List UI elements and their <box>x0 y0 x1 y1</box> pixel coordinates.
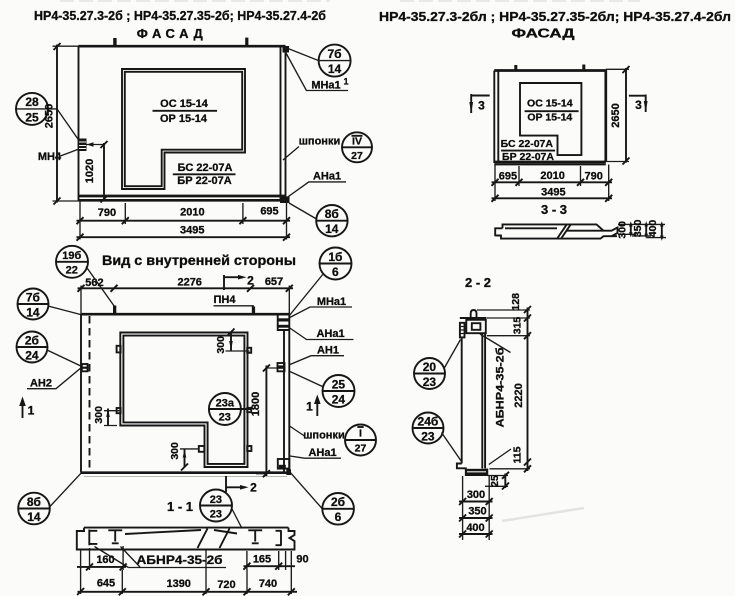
svg-text:90: 90 <box>296 554 308 566</box>
svg-text:АНа1: АНа1 <box>308 447 336 459</box>
svg-text:БС 22-07А: БС 22-07А <box>178 162 233 174</box>
svg-text:3495: 3495 <box>180 225 204 237</box>
svg-text:20: 20 <box>423 360 437 374</box>
svg-text:ОС 15-14: ОС 15-14 <box>160 98 209 110</box>
svg-text:7б: 7б <box>327 47 341 61</box>
svg-text:БС 22-07А: БС 22-07А <box>501 138 554 150</box>
svg-text:8б: 8б <box>27 495 41 509</box>
svg-text:ПН4: ПН4 <box>214 294 237 306</box>
svg-text:28: 28 <box>25 95 39 109</box>
svg-text:300: 300 <box>215 336 227 354</box>
svg-text:1800: 1800 <box>250 392 262 416</box>
svg-text:657: 657 <box>265 276 283 288</box>
svg-text:АНа1: АНа1 <box>316 328 344 340</box>
svg-text:645: 645 <box>97 577 115 589</box>
svg-text:1: 1 <box>28 404 35 418</box>
svg-text:ОС 15-14: ОС 15-14 <box>527 97 573 109</box>
svg-text:22: 22 <box>66 265 78 277</box>
svg-text:1390: 1390 <box>166 578 190 590</box>
svg-text:2220: 2220 <box>513 383 525 407</box>
svg-text:6: 6 <box>335 510 342 524</box>
svg-text:23: 23 <box>421 429 435 443</box>
svg-text:1: 1 <box>306 400 313 414</box>
svg-text:2: 2 <box>247 274 254 288</box>
svg-text:1 - 1: 1 - 1 <box>167 499 193 514</box>
svg-text:1б: 1б <box>328 250 342 264</box>
svg-text:2б: 2б <box>25 333 39 347</box>
svg-text:шпонки: шпонки <box>303 429 344 441</box>
svg-text:300: 300 <box>617 221 629 239</box>
svg-text:25: 25 <box>489 475 501 487</box>
svg-text:23: 23 <box>423 375 437 389</box>
svg-text:24б: 24б <box>418 414 439 428</box>
svg-text:27: 27 <box>355 443 367 455</box>
svg-text:2650: 2650 <box>610 103 622 127</box>
svg-text:2 - 2: 2 - 2 <box>465 275 491 290</box>
svg-text:720: 720 <box>217 579 235 591</box>
svg-text:7б: 7б <box>26 290 40 304</box>
svg-text:ОР 15-14: ОР 15-14 <box>527 111 572 123</box>
svg-text:шпонки: шпонки <box>299 136 340 148</box>
svg-text:350: 350 <box>468 506 486 518</box>
svg-text:НР4-35.27.3-2бл ; НР4-35.27.3: НР4-35.27.3-2бл ; НР4-35.27.35-2бл; НР4-… <box>379 9 731 24</box>
svg-text:6: 6 <box>332 265 339 279</box>
svg-text:115: 115 <box>512 446 524 463</box>
svg-text:14: 14 <box>328 62 342 76</box>
svg-text:ФАСАД: ФАСАД <box>137 26 208 41</box>
svg-text:ОР 15-14: ОР 15-14 <box>160 113 208 125</box>
svg-text:АН2: АН2 <box>30 378 52 390</box>
svg-text:25: 25 <box>25 111 39 125</box>
svg-text:Вид с внутренней стороны: Вид с внутренней стороны <box>102 252 296 268</box>
svg-text:2б: 2б <box>331 495 345 509</box>
svg-text:3495: 3495 <box>541 186 565 198</box>
svg-text:АБНР4-35-2б: АБНР4-35-2б <box>495 347 507 427</box>
svg-text:АНа1: АНа1 <box>313 170 341 182</box>
svg-text:14: 14 <box>26 305 40 319</box>
svg-text:МНа1: МНа1 <box>317 296 346 308</box>
svg-text:ФАСАД: ФАСАД <box>512 26 576 41</box>
svg-text:3: 3 <box>635 98 642 112</box>
svg-text:1020: 1020 <box>84 159 96 183</box>
svg-text:МН4: МН4 <box>38 151 62 163</box>
svg-text:400: 400 <box>466 522 484 534</box>
svg-text:14: 14 <box>325 222 339 236</box>
svg-text:АБНР4-35-2б: АБНР4-35-2б <box>137 553 223 567</box>
svg-text:25: 25 <box>332 377 346 391</box>
svg-text:1: 1 <box>344 77 349 87</box>
svg-text:19б: 19б <box>62 250 81 262</box>
svg-text:300: 300 <box>93 406 105 424</box>
svg-text:740: 740 <box>259 578 277 590</box>
svg-text:8б: 8б <box>325 207 339 221</box>
svg-text:24: 24 <box>25 348 39 362</box>
svg-text:300: 300 <box>169 442 181 460</box>
svg-text:695: 695 <box>499 171 517 183</box>
svg-text:2010: 2010 <box>540 170 564 182</box>
svg-text:350: 350 <box>632 219 644 237</box>
svg-text:27: 27 <box>351 150 363 162</box>
svg-text:24: 24 <box>332 392 346 406</box>
svg-text:315: 315 <box>512 317 524 335</box>
svg-text:165: 165 <box>253 553 271 565</box>
svg-text:23: 23 <box>210 494 222 506</box>
svg-text:IV: IV <box>352 135 362 147</box>
svg-text:НР4-35.27.3-2б ; НР4-35.27.35: НР4-35.27.3-2б ; НР4-35.27.35-2б; НР4-35… <box>34 8 326 23</box>
svg-text:АН1: АН1 <box>317 344 339 356</box>
svg-text:23: 23 <box>210 508 222 520</box>
svg-text:МНа1: МНа1 <box>311 80 340 92</box>
svg-text:I: I <box>359 428 362 440</box>
svg-text:2010: 2010 <box>180 207 204 219</box>
svg-text:2276: 2276 <box>177 276 201 288</box>
svg-text:790: 790 <box>98 207 116 219</box>
svg-text:790: 790 <box>585 170 603 182</box>
svg-text:БР 22-07А: БР 22-07А <box>502 151 554 163</box>
svg-text:3: 3 <box>478 99 485 113</box>
svg-text:3 - 3: 3 - 3 <box>541 202 567 217</box>
svg-text:160: 160 <box>96 554 114 566</box>
svg-text:695: 695 <box>260 206 278 218</box>
svg-text:2650: 2650 <box>44 104 56 128</box>
svg-text:2: 2 <box>250 481 257 495</box>
svg-text:23а: 23а <box>216 397 235 409</box>
svg-text:300: 300 <box>467 489 485 501</box>
svg-text:400: 400 <box>647 220 659 238</box>
svg-text:14: 14 <box>27 510 41 524</box>
svg-text:БР 22-07А: БР 22-07А <box>177 175 231 187</box>
svg-text:128: 128 <box>510 293 522 311</box>
svg-text:23: 23 <box>219 412 231 424</box>
